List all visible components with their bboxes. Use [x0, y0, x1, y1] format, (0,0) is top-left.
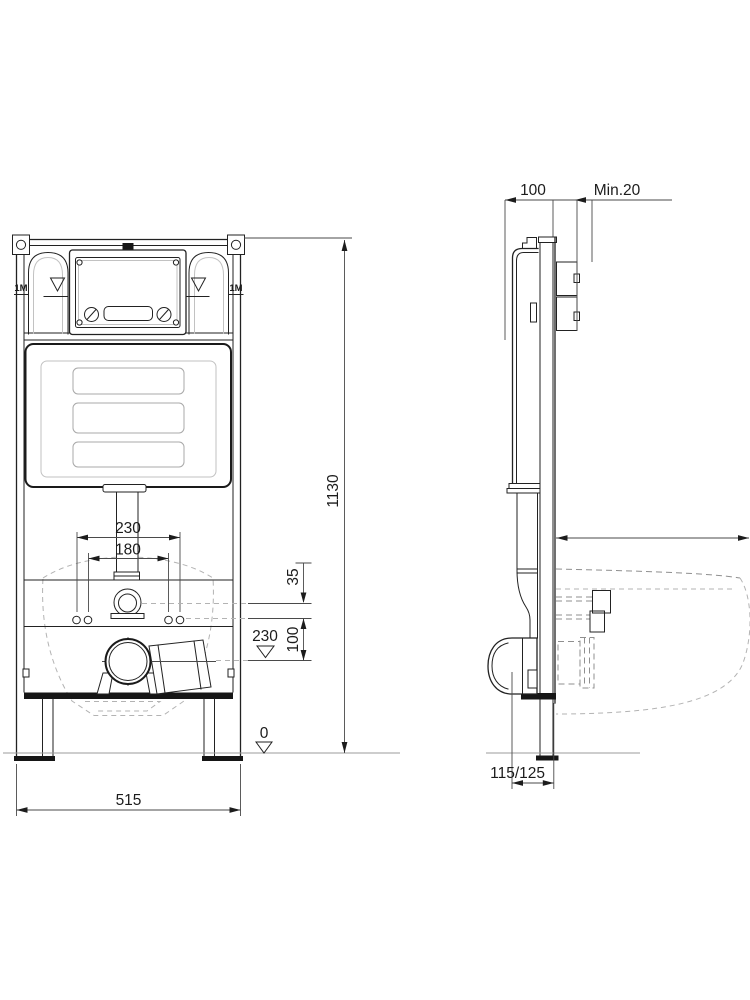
flush-button-slot — [104, 307, 153, 321]
bowl-side-outline-dashed — [556, 569, 750, 714]
tank-label — [73, 442, 184, 467]
dim-1130-text: 1130 — [325, 474, 342, 508]
bottom-crossbar — [24, 693, 233, 700]
outlet-pipe-hidden — [558, 638, 594, 689]
tank-label — [73, 368, 184, 394]
dim-outlet-text: 115/125 — [490, 765, 545, 782]
hanger-hole-right — [231, 240, 240, 249]
panel-slot-screw-right — [157, 308, 171, 322]
bolt-hole — [84, 616, 92, 624]
installation-frame-drawing: 1M 1M — [0, 0, 750, 1000]
bolt-hole — [165, 616, 173, 624]
dim-drain-offset: 100 — [285, 619, 306, 661]
drain-elbow — [149, 640, 211, 694]
water-inlet-fitting — [110, 589, 146, 620]
foot-plate-left — [14, 756, 55, 761]
panel-screw-icon — [173, 320, 178, 325]
dim-230-text: 230 — [252, 628, 278, 645]
cistern-tank — [26, 344, 232, 487]
flush-pipe-side — [517, 493, 538, 638]
dim-515-text: 515 — [116, 792, 142, 809]
dim-rod-inner-text: 180 — [115, 542, 141, 559]
bowl-outline-dashed — [43, 557, 214, 716]
drain-assembly — [97, 637, 216, 694]
panel-screw-icon — [77, 320, 82, 325]
dim-rod-outer-text: 230 — [115, 520, 141, 537]
bolt-hole — [176, 616, 184, 624]
panel-screw-icon — [77, 260, 82, 265]
threaded-rods-side — [556, 591, 611, 633]
leg-side — [536, 703, 559, 761]
panel-top-tab — [123, 243, 134, 250]
dim-drain-height: 230 — [252, 628, 278, 658]
wall-anchor-plate — [557, 200, 580, 331]
side-view: 100 Min.20 — [486, 182, 750, 789]
drain-elbow-side — [488, 638, 537, 694]
dim-0-text: 0 — [260, 725, 269, 742]
dim-frame-width: 515 — [17, 764, 241, 816]
foot-plate-right — [202, 756, 243, 761]
panel-slot-screw-left — [85, 308, 99, 322]
dim-wall-min-text: Min.20 — [594, 182, 641, 199]
dim-100-text: 100 — [285, 626, 302, 652]
anchor-label-left: 1M — [14, 283, 27, 294]
frame-rail-side — [521, 237, 557, 703]
hanger-hole-left — [16, 240, 25, 249]
technical-drawing-page: 1M 1M — [0, 0, 750, 1000]
access-panel — [70, 243, 187, 335]
dim-35-text: 35 — [285, 568, 302, 585]
drain-outlet — [106, 639, 151, 684]
dim-frame-height: 1130 — [244, 238, 352, 753]
dim-floor-datum: 0 — [256, 725, 272, 753]
front-view: 1M 1M — [3, 235, 400, 816]
bolt-hole — [73, 616, 81, 624]
dim-inlet-offset: 35 — [285, 563, 312, 603]
water-level-mark-left — [44, 278, 67, 297]
dim-bowl-depth-ref — [556, 535, 749, 541]
dim-depth-text: 100 — [520, 182, 546, 199]
tank-label — [73, 403, 184, 433]
anchor-label-right: 1M — [229, 283, 242, 294]
panel-screw-icon — [173, 260, 178, 265]
cistern-side — [507, 238, 540, 494]
